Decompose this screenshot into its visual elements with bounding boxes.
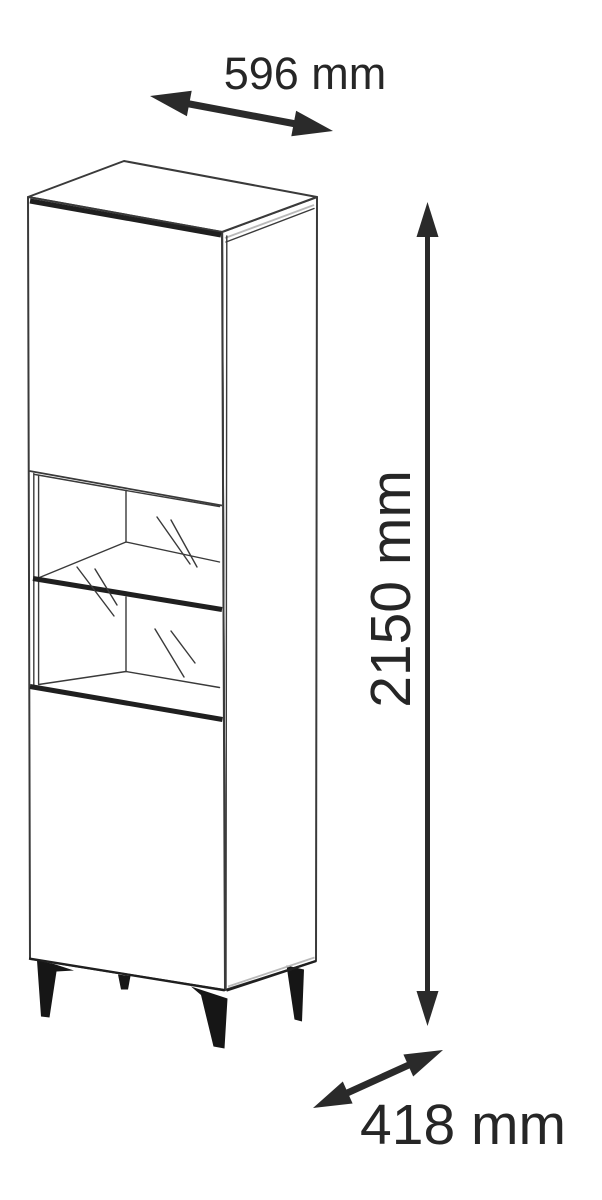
cabinet-leg-front-left bbox=[37, 961, 74, 1018]
depth-dimension-label: 418 mm bbox=[360, 1093, 566, 1157]
furniture-dimension-diagram: 596 mm 2150 mm 418 mm bbox=[0, 0, 602, 1200]
width-dimension-label: 596 mm bbox=[224, 48, 387, 99]
width-arrow-shaft bbox=[187, 104, 296, 125]
front-right-corner-edge-b bbox=[226, 236, 227, 988]
cabinet-leg-front-right bbox=[191, 987, 228, 1049]
depth-arrow-shaft bbox=[345, 1064, 411, 1094]
height-dimension-label: 2150 mm bbox=[359, 470, 423, 708]
dimension-diagram-canvas: 596 mm 2150 mm 418 mm bbox=[0, 0, 602, 1200]
height-arrowhead-top bbox=[417, 202, 439, 237]
width-arrowhead-right bbox=[291, 111, 333, 137]
cabinet-drawing bbox=[28, 161, 317, 1049]
cabinet-side-face bbox=[222, 197, 317, 990]
depth-arrowhead-left bbox=[313, 1082, 353, 1109]
depth-arrowhead-right bbox=[403, 1050, 443, 1077]
width-arrowhead-left bbox=[150, 91, 192, 117]
cabinet-leg-back-middle bbox=[118, 975, 131, 990]
depth-dimension: 418 mm bbox=[313, 1050, 566, 1157]
height-arrowhead-bottom bbox=[417, 991, 439, 1026]
cabinet-leg-back-right bbox=[287, 966, 305, 1022]
height-dimension: 2150 mm bbox=[359, 202, 439, 1026]
width-dimension: 596 mm bbox=[150, 48, 386, 136]
